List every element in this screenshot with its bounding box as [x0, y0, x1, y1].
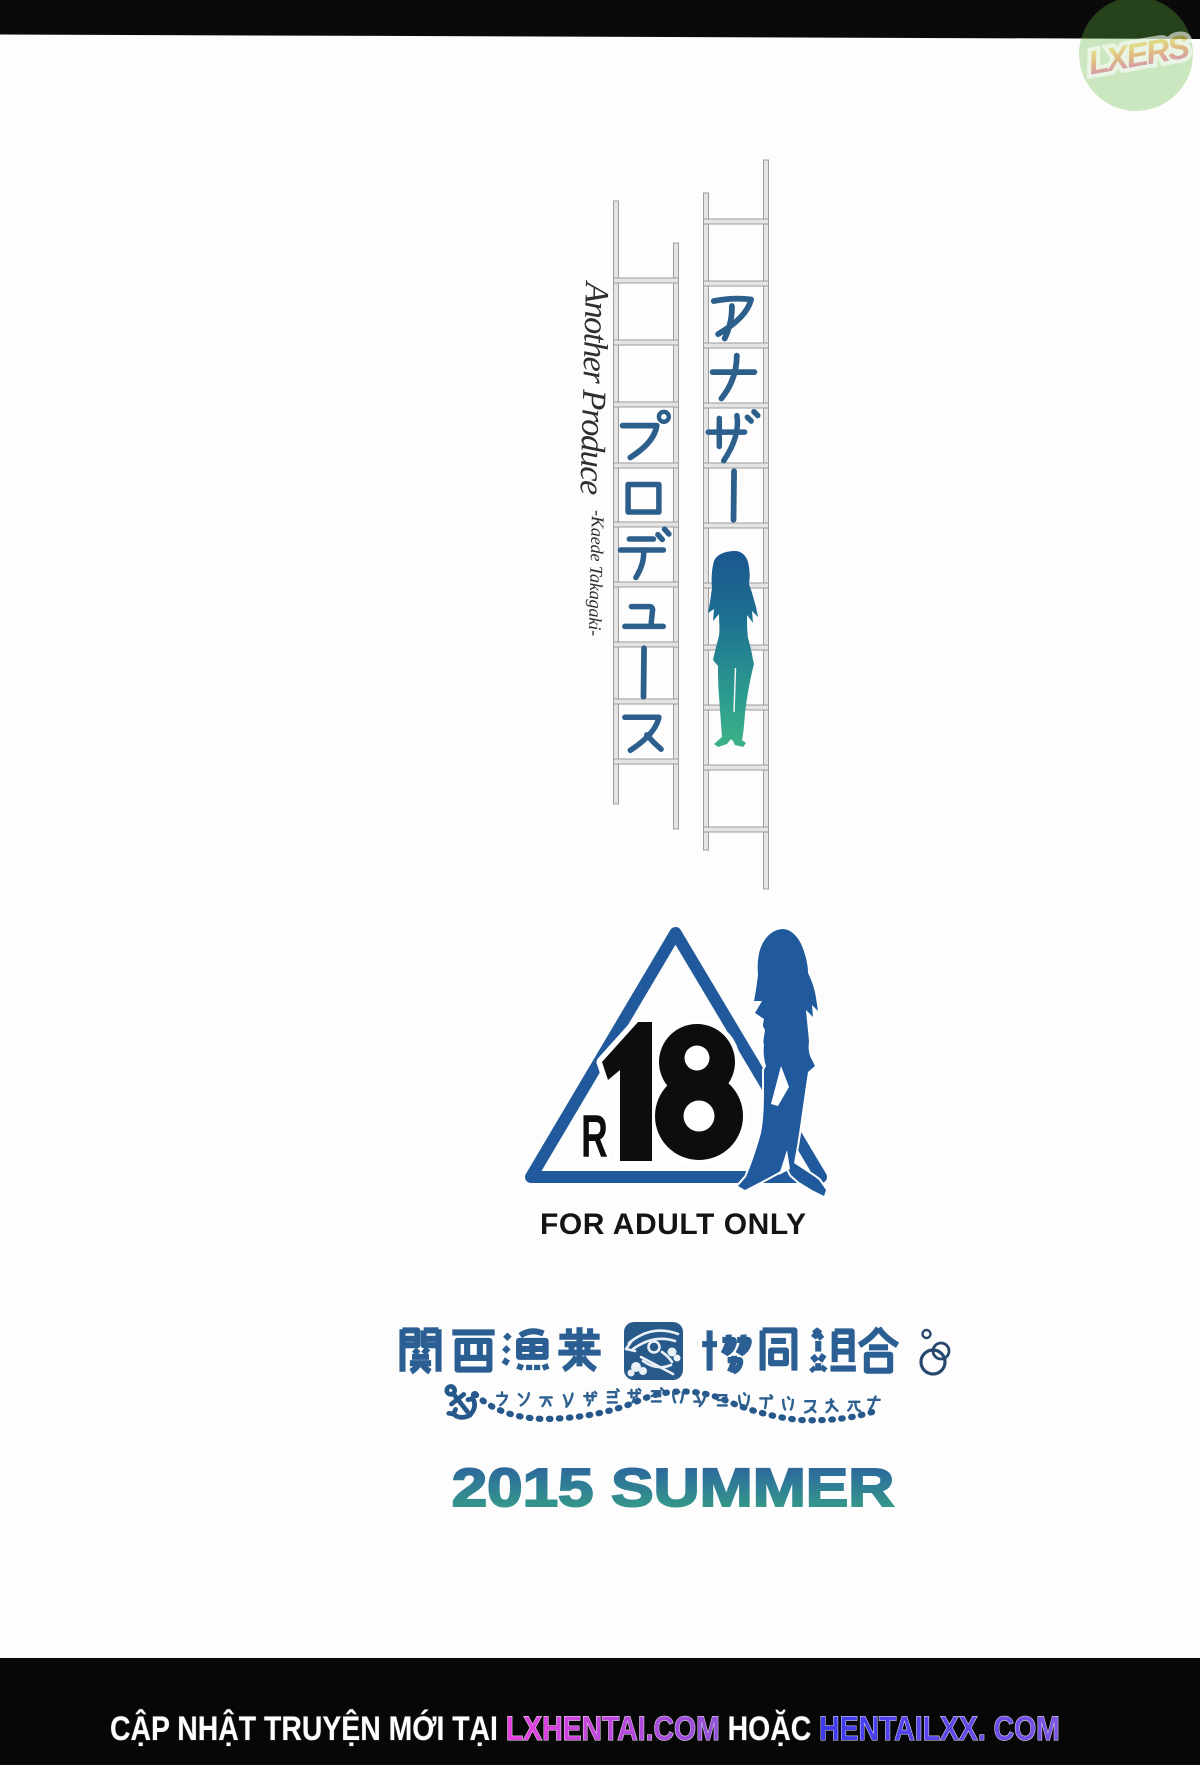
- svg-text:-Kaede Takagaki-: -Kaede Takagaki-: [585, 510, 608, 636]
- svg-text:Another Produce: Another Produce: [572, 280, 615, 496]
- svg-text:FOR ADULT ONLY: FOR ADULT ONLY: [540, 1208, 806, 1241]
- svg-text:R: R: [581, 1103, 608, 1170]
- svg-text:2015 SUMMER: 2015 SUMMER: [452, 1458, 895, 1518]
- svg-text:CẬP NHẬT TRUYỆN MỚI TẠI LXHENT: CẬP NHẬT TRUYỆN MỚI TẠI LXHENTAI.COM HOẶ…: [110, 1709, 1060, 1748]
